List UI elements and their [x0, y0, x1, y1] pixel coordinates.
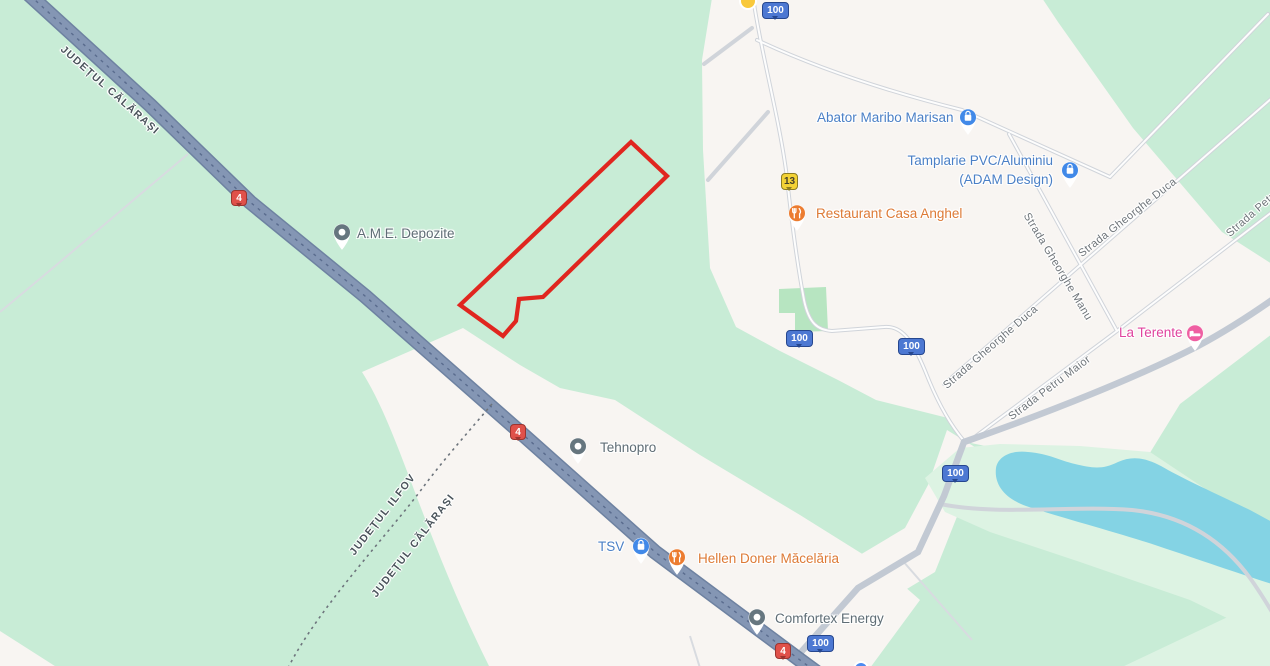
restaurant-pin-hellen[interactable] — [665, 546, 689, 576]
poi-label-la-terente[interactable]: La Terente — [1119, 325, 1183, 340]
place-pin-tehnopro[interactable] — [566, 435, 590, 465]
route-shield-100: 100 — [762, 2, 789, 19]
place-pin-comfortex[interactable] — [745, 606, 769, 636]
poi-label-restaurant-casa-anghel[interactable]: Restaurant Casa Anghel — [816, 206, 962, 221]
restaurant-pin-casa-anghel[interactable] — [785, 202, 809, 232]
route-shield-dn4: 4 — [231, 190, 247, 206]
poi-label-tamplarie-line2: (ADAM Design) — [903, 170, 1053, 189]
place-pin-ame[interactable] — [330, 221, 354, 251]
route-shield-100: 100 — [807, 635, 834, 652]
route-shield-dn4: 4 — [775, 643, 791, 659]
route-shield-100: 100 — [786, 330, 813, 347]
shopping-pin-tsv[interactable] — [629, 535, 653, 565]
poi-label-comfortex-energy[interactable]: Comfortex Energy — [775, 611, 884, 626]
poi-dot-yellow[interactable] — [740, 0, 756, 9]
shopping-pin-abator[interactable] — [956, 106, 980, 136]
route-shield-13: 13 — [781, 173, 798, 190]
map-canvas[interactable]: 4 4 4 100 100 100 100 100 13 JUDEȚUL CĂL… — [0, 0, 1270, 666]
poi-label-abator-maribo[interactable]: Abator Maribo Marisan — [817, 110, 954, 125]
route-shield-dn4: 4 — [510, 424, 526, 440]
poi-label-tamplarie-line1: Tamplarie PVC/Aluminiu — [903, 151, 1053, 170]
map-base-layer — [0, 0, 1270, 666]
poi-label-hellen-doner[interactable]: Hellen Doner Măcelăria — [698, 551, 839, 566]
shopping-pin-adam[interactable] — [1058, 159, 1082, 189]
route-shield-100: 100 — [942, 465, 969, 482]
lodging-pin-la-terente[interactable] — [1183, 322, 1207, 352]
poi-label-ame-depozite[interactable]: A.M.E. Depozite — [357, 226, 455, 241]
route-shield-100: 100 — [898, 338, 925, 355]
poi-label-tehnopro[interactable]: Tehnopro — [600, 440, 656, 455]
poi-label-tamplarie-adam[interactable]: Tamplarie PVC/Aluminiu (ADAM Design) — [903, 151, 1053, 189]
poi-label-tsv[interactable]: TSV — [598, 539, 624, 554]
